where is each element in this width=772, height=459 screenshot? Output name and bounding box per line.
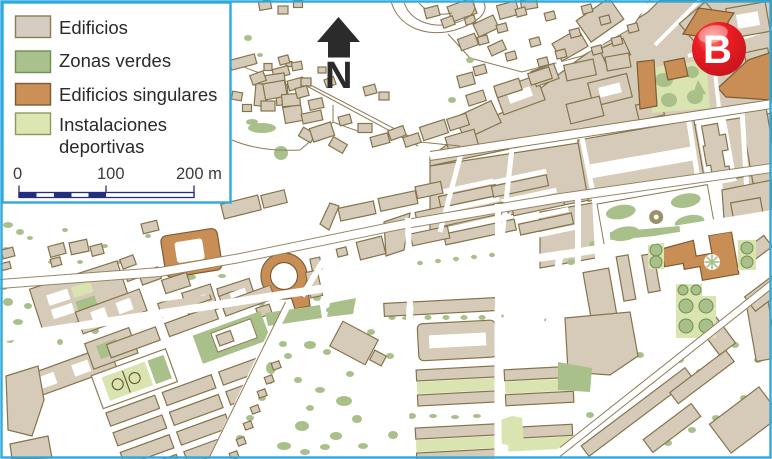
svg-text:Edificios: Edificios [59,17,128,38]
svg-text:200 m: 200 m [176,165,222,183]
svg-text:Edificios singulares: Edificios singulares [59,84,217,105]
svg-text:100: 100 [97,165,125,183]
svg-text:Zonas verdes: Zonas verdes [59,50,171,71]
svg-text:B: B [703,28,732,72]
svg-text:Instalaciones: Instalaciones [59,114,167,135]
svg-text:0: 0 [13,165,22,183]
svg-text:deportivas: deportivas [59,136,144,157]
svg-text:N: N [325,55,352,97]
